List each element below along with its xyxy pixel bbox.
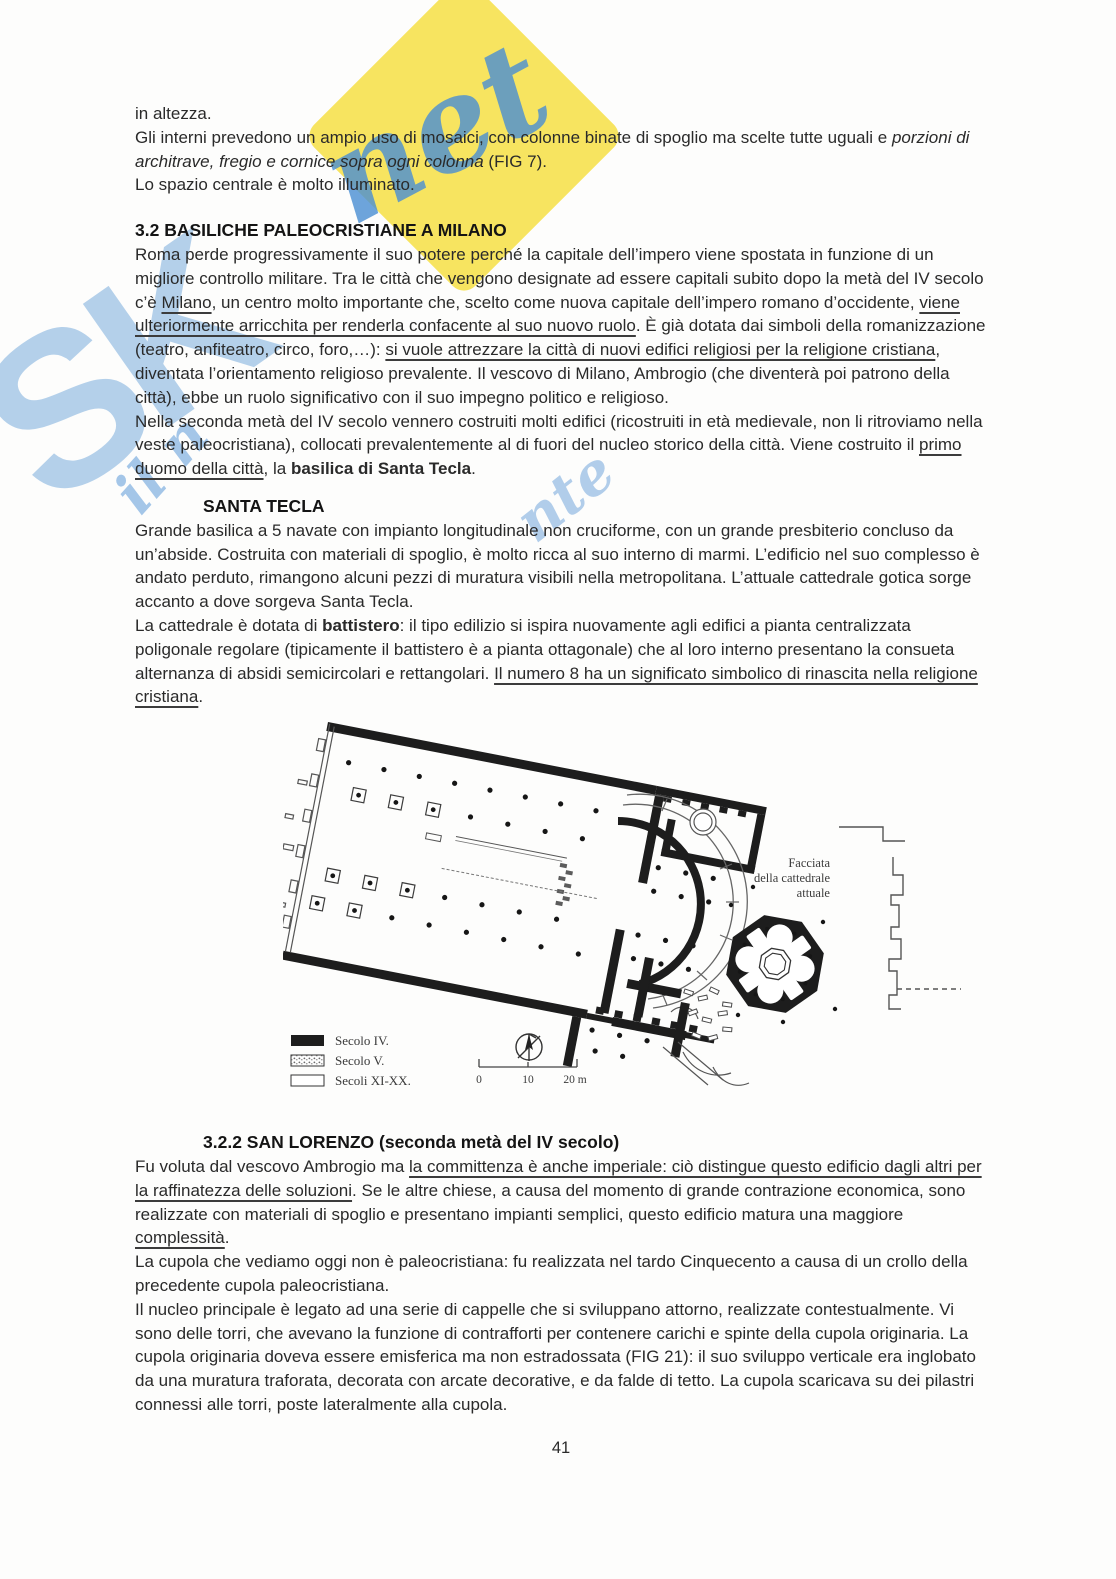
text-segment: Grande basilica a 5 navate con impianto …: [135, 521, 980, 611]
paragraph: Il nucleo principale è legato ad una ser…: [135, 1298, 987, 1417]
excavation-rubble: [684, 987, 732, 1041]
text-segment: .: [471, 459, 476, 478]
document-body: in altezza. Gli interni prevedono un amp…: [0, 0, 1116, 1460]
text-segment: Lo spazio centrale è molto illuminato.: [135, 175, 415, 194]
text-segment: , la: [264, 459, 291, 478]
text-segment: Fu voluta dal vescovo Ambrogio ma: [135, 1157, 409, 1176]
text-segment: 3.2.2 SAN LORENZO (seconda metà del IV s…: [203, 1132, 619, 1152]
text-segment: Nella seconda metà del IV secolo vennero…: [135, 412, 983, 455]
column-bases-south: [310, 866, 415, 927]
west-wall-outline: [283, 720, 334, 953]
text-segment: 3.2 BASILICHE PALEOCRISTIANE A MILANO: [135, 220, 507, 240]
legend-swatch-secolo-v: [291, 1055, 324, 1066]
floor-plan-drawing: Facciata della cattedrale attuale Secolo…: [283, 717, 983, 1117]
text-segment: Milano: [161, 293, 211, 312]
legend-swatch-secolo-iv: [291, 1035, 324, 1046]
column-dots-south: [389, 885, 587, 957]
text-segment: SANTA TECLA: [203, 496, 325, 516]
document-page: SK net il n nte in altezza. Gli interni …: [0, 0, 1116, 1579]
paragraph: Fu voluta dal vescovo Ambrogio ma la com…: [135, 1155, 987, 1250]
text-segment: in altezza.: [135, 104, 212, 123]
text-segment: La cattedrale è dotata di: [135, 616, 322, 635]
legend-label-secoli-xi-xx: Secoli XI-XX.: [335, 1073, 411, 1088]
text-segment: .: [225, 1228, 230, 1247]
facade-label-line2: della cattedrale: [754, 871, 830, 885]
subsection-heading-santa-tecla: SANTA TECLA: [203, 495, 987, 519]
text-segment: .: [198, 687, 203, 706]
text-segment: , un centro molto importante che, scelto…: [212, 293, 920, 312]
paragraph: Nella seconda metà del IV secolo vennero…: [135, 410, 987, 481]
paragraph: Gli interni prevedono un ampio uso di mo…: [135, 126, 987, 174]
legend-swatch-secoli-xi-xx: [291, 1075, 324, 1086]
legend-label-secolo-iv: Secolo IV.: [335, 1033, 389, 1048]
north-compass-icon: [516, 1034, 542, 1061]
scale-label-20m: 20 m: [563, 1074, 586, 1086]
secolo-v-remains: [418, 831, 606, 913]
text-segment: La cupola che vediamo oggi non è paleocr…: [135, 1252, 968, 1295]
santa-tecla-floor-plan-figure: Facciata della cattedrale attuale Secolo…: [283, 717, 983, 1117]
facade-outline: [839, 827, 961, 1009]
text-segment: Il nucleo principale è legato ad una ser…: [135, 1300, 976, 1414]
paragraph: La cattedrale è dotata di battistero: il…: [135, 614, 987, 709]
paragraph: Roma perde progressivamente il suo poter…: [135, 243, 987, 410]
text-segment: (FIG 7).: [484, 152, 547, 171]
legend-label-secolo-v: Secolo V.: [335, 1053, 384, 1068]
text-segment: Gli interni prevedono un ampio uso di mo…: [135, 128, 892, 147]
scale-label-10: 10: [522, 1074, 534, 1086]
paragraph: Grande basilica a 5 navate con impianto …: [135, 519, 987, 614]
legend: Secolo IV. Secolo V. Secoli XI-XX.: [291, 1033, 411, 1088]
subsection-heading-san-lorenzo: 3.2.2 SAN LORENZO (seconda metà del IV s…: [203, 1131, 987, 1155]
facade-label-line3: attuale: [797, 886, 831, 900]
paragraph: in altezza.: [135, 102, 987, 126]
text-segment: complessità: [135, 1228, 225, 1247]
section-heading-basiliche-milano: 3.2 BASILICHE PALEOCRISTIANE A MILANO: [135, 219, 987, 243]
text-segment: si vuole attrezzare la città di nuovi ed…: [385, 340, 935, 359]
text-segment: battistero: [322, 616, 399, 635]
facade-label-line1: Facciata: [788, 856, 830, 870]
paragraph: La cupola che vediamo oggi non è paleocr…: [135, 1250, 987, 1298]
scale-label-0: 0: [476, 1074, 482, 1086]
page-number: 41: [135, 1437, 987, 1461]
octagonal-baptistery: [721, 911, 828, 1018]
text-segment: basilica di Santa Tecla: [291, 459, 471, 478]
paragraph: Lo spazio centrale è molto illuminato.: [135, 173, 987, 197]
